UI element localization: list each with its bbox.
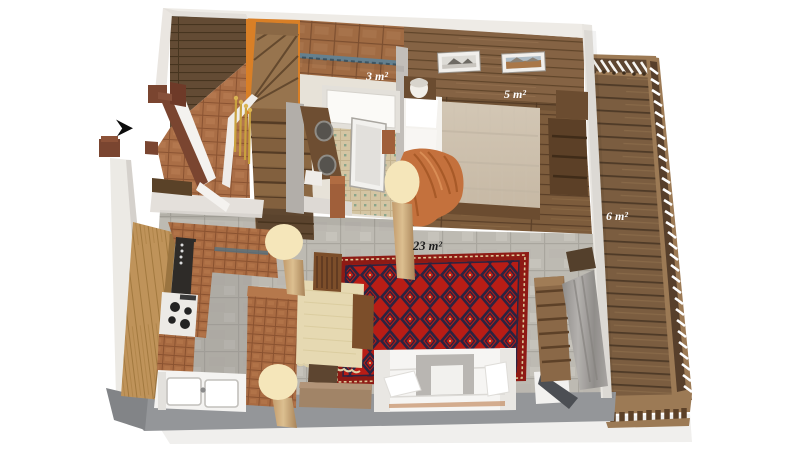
svg-text:23 m²: 23 m²	[412, 239, 442, 253]
svg-text:6 m²: 6 m²	[606, 209, 628, 223]
svg-text:5 m²: 5 m²	[504, 87, 526, 101]
svg-text:3 m²: 3 m²	[365, 69, 388, 83]
